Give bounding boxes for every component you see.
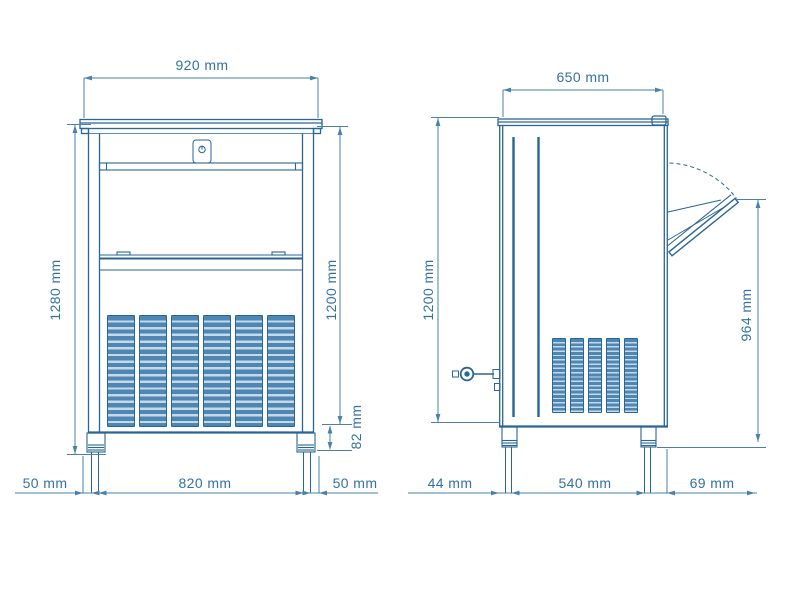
dim-side-height-cabinet-label: 1200 mm xyxy=(420,230,436,350)
dim-side-depth-label: 650 mm xyxy=(543,69,623,85)
grille-column xyxy=(235,315,263,427)
side-vent-grille xyxy=(552,338,638,413)
grille-column xyxy=(552,338,566,413)
grille-column xyxy=(107,315,135,427)
technical-drawing-canvas: 920 mm 1280 mm 1200 mm 82 mm 50 mm 820 m… xyxy=(0,0,800,600)
grille-column xyxy=(570,338,584,413)
dim-front-feet-spacing-label: 820 mm xyxy=(165,475,245,491)
dim-front-foot-height-label: 82 mm xyxy=(348,397,364,457)
front-vent-grille xyxy=(107,315,295,427)
drawing-linework xyxy=(0,0,800,600)
side-view xyxy=(408,88,766,496)
grille-column xyxy=(267,315,295,427)
grille-column xyxy=(588,338,602,413)
grille-column xyxy=(624,338,638,413)
dim-side-door-clearance-label: 964 mm xyxy=(738,270,754,360)
dim-front-height-overall-label: 1280 mm xyxy=(47,230,63,350)
front-foot-right xyxy=(297,433,315,493)
brand-badge xyxy=(193,140,211,163)
door-handle-notch-left xyxy=(117,252,130,255)
dim-side-offset-front-label: 44 mm xyxy=(420,475,480,491)
side-dimension-lines xyxy=(408,88,766,496)
water-inlet-fitting xyxy=(453,368,501,391)
grille-column xyxy=(139,315,167,427)
dim-front-offset-left-label: 50 mm xyxy=(15,475,75,491)
door-handle-notch-right xyxy=(272,252,285,255)
front-door-panel xyxy=(100,163,303,270)
dim-side-offset-rear-label: 69 mm xyxy=(682,475,742,491)
dim-front-height-cabinet-label: 1200 mm xyxy=(323,230,339,350)
dim-front-offset-right-label: 50 mm xyxy=(325,475,385,491)
dim-front-width-label: 920 mm xyxy=(162,57,242,73)
grille-column xyxy=(171,315,199,427)
dim-side-feet-spacing-label: 540 mm xyxy=(545,475,625,491)
side-foot-front xyxy=(502,427,517,493)
grille-column xyxy=(606,338,620,413)
door-swing-arc xyxy=(670,163,737,199)
top-cap-tab xyxy=(652,116,666,125)
side-foot-rear xyxy=(641,427,656,493)
front-foot-left xyxy=(87,433,105,493)
power-logo-icon xyxy=(199,146,205,153)
grille-column xyxy=(203,315,231,427)
open-door-flap xyxy=(668,163,738,256)
